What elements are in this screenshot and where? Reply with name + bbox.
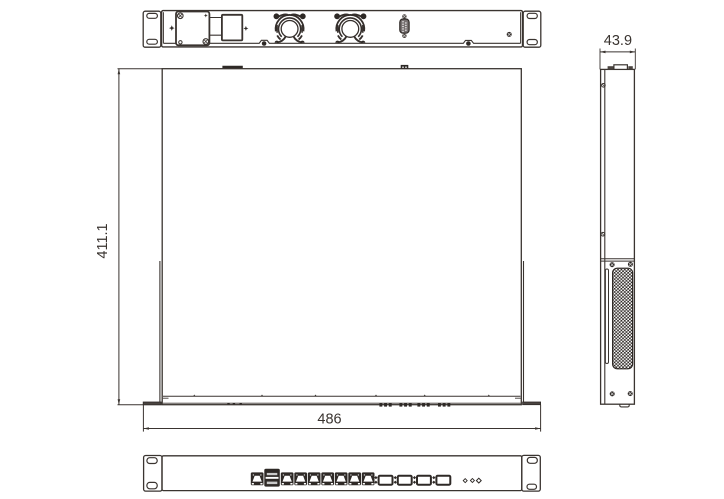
svg-text:43.9: 43.9 [604,33,632,49]
svg-text:486: 486 [317,412,341,428]
svg-text:411.1: 411.1 [95,223,111,258]
